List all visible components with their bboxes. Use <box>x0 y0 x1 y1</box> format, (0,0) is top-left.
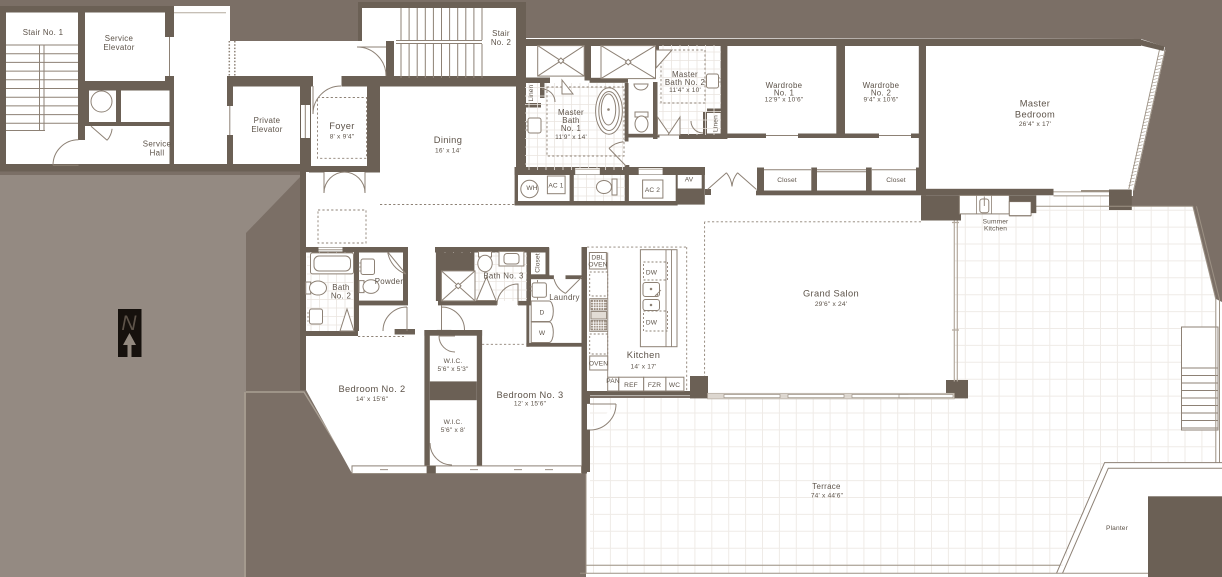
svg-text:Hall: Hall <box>150 149 165 158</box>
svg-text:Bedroom No. 2: Bedroom No. 2 <box>338 384 405 394</box>
svg-text:Kitchen: Kitchen <box>984 226 1007 233</box>
svg-text:No. 2: No. 2 <box>331 292 351 301</box>
svg-text:WC: WC <box>669 382 680 389</box>
svg-text:FZR: FZR <box>648 382 661 389</box>
svg-text:W.I.C.: W.I.C. <box>444 419 463 426</box>
svg-text:DW: DW <box>646 320 658 327</box>
svg-text:12' x 15'6": 12' x 15'6" <box>514 401 547 408</box>
svg-text:11'4" x 10': 11'4" x 10' <box>669 87 701 94</box>
svg-text:Foyer: Foyer <box>329 121 355 131</box>
svg-text:OVEN: OVEN <box>589 361 608 368</box>
svg-text:14' x 17': 14' x 17' <box>631 364 657 371</box>
svg-text:Grand Salon: Grand Salon <box>803 289 859 299</box>
svg-text:Closet: Closet <box>535 253 542 273</box>
svg-text:Bath No. 2: Bath No. 2 <box>665 78 705 87</box>
svg-text:Stair: Stair <box>492 29 510 38</box>
svg-text:Planter: Planter <box>1106 525 1129 532</box>
svg-text:Linen: Linen <box>713 115 720 132</box>
svg-text:26'4" x 17': 26'4" x 17' <box>1019 121 1051 128</box>
svg-text:Elevator: Elevator <box>251 125 282 134</box>
svg-text:No. 2: No. 2 <box>491 38 511 47</box>
svg-text:D: D <box>540 310 545 317</box>
svg-text:Bath No. 3: Bath No. 3 <box>483 272 524 281</box>
svg-text:29'6" x 24': 29'6" x 24' <box>815 301 847 308</box>
svg-text:W.I.C.: W.I.C. <box>444 358 463 365</box>
svg-text:No. 1: No. 1 <box>561 124 581 133</box>
svg-text:OVEN: OVEN <box>588 262 607 269</box>
svg-text:DBL: DBL <box>591 255 604 262</box>
svg-text:PAN: PAN <box>606 378 620 385</box>
svg-text:Laundry: Laundry <box>549 293 580 302</box>
svg-text:5'6" x 8': 5'6" x 8' <box>441 427 466 434</box>
svg-text:AV: AV <box>685 177 694 184</box>
svg-text:Kitchen: Kitchen <box>627 350 660 360</box>
svg-text:Stair No. 1: Stair No. 1 <box>23 28 64 37</box>
svg-text:14' x 15'6": 14' x 15'6" <box>356 396 389 403</box>
svg-text:Dining: Dining <box>434 135 462 145</box>
svg-text:9'4" x 10'6": 9'4" x 10'6" <box>864 97 899 104</box>
svg-text:Service: Service <box>143 140 172 149</box>
svg-text:AC 1: AC 1 <box>548 183 563 190</box>
svg-text:12'9" x 10'6": 12'9" x 10'6" <box>765 97 804 104</box>
svg-text:74' x 44'6": 74' x 44'6" <box>811 493 844 500</box>
svg-text:REF: REF <box>624 382 638 389</box>
svg-text:16' x 14': 16' x 14' <box>435 148 461 155</box>
svg-text:Closet: Closet <box>886 177 906 184</box>
svg-text:Bedroom: Bedroom <box>1015 110 1055 120</box>
svg-text:WH: WH <box>526 185 537 192</box>
svg-text:Linen: Linen <box>528 84 535 101</box>
svg-text:N: N <box>121 312 137 335</box>
svg-text:Elevator: Elevator <box>103 43 134 52</box>
svg-text:8' x 9'4": 8' x 9'4" <box>330 134 355 141</box>
svg-text:5'6" x 5'3": 5'6" x 5'3" <box>437 366 468 373</box>
svg-text:Terrace: Terrace <box>812 482 841 491</box>
svg-text:DW: DW <box>646 270 658 277</box>
svg-text:Private: Private <box>254 116 281 125</box>
svg-text:Service: Service <box>105 34 134 43</box>
svg-text:Master: Master <box>1020 99 1051 109</box>
svg-text:W: W <box>539 330 546 337</box>
svg-text:Powder: Powder <box>375 277 404 286</box>
svg-text:Bedroom No. 3: Bedroom No. 3 <box>496 390 563 400</box>
svg-text:Closet: Closet <box>777 177 797 184</box>
svg-text:Summer: Summer <box>983 219 1009 226</box>
svg-text:11'9" x 14': 11'9" x 14' <box>555 134 587 141</box>
svg-text:AC 2: AC 2 <box>645 187 660 194</box>
